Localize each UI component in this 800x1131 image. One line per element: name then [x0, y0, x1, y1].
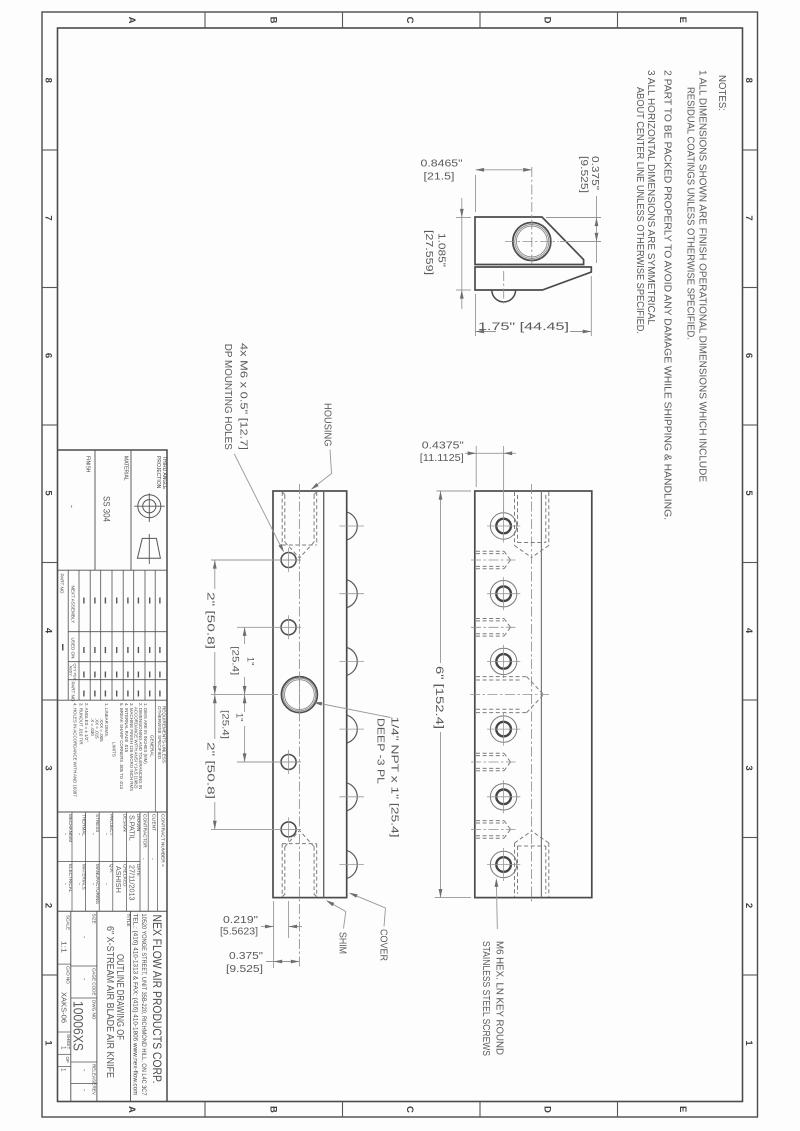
svg-text:ASSY: ASSY	[68, 666, 73, 677]
svg-text:SHIM: SHIM	[337, 932, 349, 954]
svg-text:1": 1"	[235, 713, 245, 722]
svg-text:-: -	[67, 505, 77, 508]
svg-text:6: 6	[743, 353, 754, 358]
svg-text:10520 YONGE STREET, UNIT 35B-2: 10520 YONGE STREET, UNIT 35B-220, RICHMO…	[140, 914, 147, 1096]
svg-text:3. RUNOUT .010 TIR: 3. RUNOUT .010 TIR	[78, 703, 83, 745]
svg-text:-: -	[62, 883, 68, 885]
svg-text:[9.525]: [9.525]	[226, 964, 263, 975]
svg-text:7: 7	[42, 215, 53, 220]
svg-text:SIZE: SIZE	[91, 914, 96, 924]
svg-text:CAGE CODE: CAGE CODE	[91, 968, 96, 996]
svg-text:1": 1"	[246, 657, 256, 666]
svg-text:1/4" NPT x 1" [25.4]: 1/4" NPT x 1" [25.4]	[389, 717, 401, 838]
svg-text:Q.A.: Q.A.	[109, 864, 114, 873]
svg-text:8: 8	[743, 78, 754, 83]
svg-text:E: E	[677, 17, 688, 23]
svg-text:ELECTRICAL: ELECTRICAL	[68, 864, 73, 893]
svg-text:3: 3	[743, 765, 754, 770]
svg-text:STRESS: STRESS	[95, 814, 100, 832]
svg-text:[11.1125]: [11.1125]	[420, 453, 464, 464]
svg-text:2 PART TO BE PACKED PROPERLY: 2 PART TO BE PACKED PROPERLY TO AVOID AN…	[662, 70, 673, 520]
svg-text:0.375": 0.375"	[589, 156, 600, 191]
svg-text:FINISH: FINISH	[85, 456, 91, 473]
svg-text:D: D	[542, 1106, 553, 1113]
svg-text:DEEP -3 PL: DEEP -3 PL	[375, 718, 387, 784]
svg-text:4: 4	[42, 628, 53, 634]
svg-text:0.8465": 0.8465"	[421, 159, 464, 170]
svg-text:-: -	[103, 833, 109, 835]
svg-text:MATERIALS: MATERIALS	[82, 864, 87, 890]
svg-text:ASHISH: ASHISH	[114, 866, 123, 893]
svg-text:[5.5623]: [5.5623]	[220, 927, 258, 938]
svg-text:1: 1	[60, 1046, 67, 1050]
svg-text:-: -	[76, 833, 82, 835]
svg-text:0.375": 0.375"	[229, 951, 264, 962]
svg-text:NEX FLOW AIR PRODUCTS CORP.: NEX FLOW AIR PRODUCTS CORP.	[150, 915, 163, 1084]
svg-text:ABOUT CENTER LINE UNLESS OTHER: ABOUT CENTER LINE UNLESS OTHERWISE SPECI…	[634, 87, 645, 334]
svg-text:6" [152.4]: 6" [152.4]	[433, 666, 445, 729]
svg-text:[27.559]: [27.559]	[423, 230, 434, 275]
svg-text:DWG NO: DWG NO	[91, 1000, 96, 1020]
svg-text:MATERIAL: MATERIAL	[123, 456, 129, 481]
svg-text:D: D	[542, 17, 553, 24]
svg-text:DP MOUNTING HOLES: DP MOUNTING HOLES	[222, 344, 234, 450]
svg-text:27/11/2013: 27/11/2013	[128, 865, 137, 900]
svg-text:MECHANISM: MECHANISM	[68, 814, 73, 842]
svg-text:10006XS: 10006XS	[70, 1001, 85, 1051]
svg-text:NOTES:: NOTES:	[716, 75, 727, 111]
svg-text:0.219": 0.219"	[223, 915, 259, 926]
svg-text:2" [50.8]: 2" [50.8]	[205, 742, 216, 799]
svg-text:2" [50.8]: 2" [50.8]	[205, 592, 216, 649]
svg-text:OTHERWISE SPECIFIED: OTHERWISE SPECIFIED	[157, 706, 162, 760]
svg-text:NEXT ASSEMBLY: NEXT ASSEMBLY	[70, 586, 75, 624]
svg-text:1.75" [44.45]: 1.75" [44.45]	[478, 321, 569, 333]
svg-text:USED ON: USED ON	[70, 638, 75, 659]
svg-text:1: 1	[743, 1040, 754, 1046]
svg-text:PART NO: PART NO	[60, 574, 65, 594]
svg-text:COVER: COVER	[378, 929, 390, 961]
svg-text:1.085": 1.085"	[436, 233, 447, 268]
svg-text:-: -	[76, 883, 82, 885]
svg-text:1 ALL DIMENSIONS SHOWN ARE F: 1 ALL DIMENSIONS SHOWN ARE FINISH OPERAT…	[697, 70, 708, 482]
svg-text:1: 1	[42, 1040, 53, 1046]
svg-text:[21.5]: [21.5]	[424, 172, 455, 183]
svg-text:1:1: 1:1	[60, 941, 69, 953]
svg-text:4: 4	[743, 628, 754, 634]
svg-text:5: 5	[42, 490, 53, 496]
svg-text:OF: OF	[65, 1057, 70, 1064]
svg-text:-: -	[140, 858, 146, 860]
svg-text:LIMITS: LIMITS	[111, 742, 116, 757]
svg-text:STAINLESS STEEL SCREWS: STAINLESS STEEL SCREWS	[480, 941, 492, 1056]
svg-text:6" X-STREAM AIR BLADE AIR KNIF: 6" X-STREAM AIR BLADE AIR KNIFE	[104, 926, 115, 1078]
svg-text:C: C	[404, 1106, 415, 1113]
svg-text:A: A	[126, 1106, 137, 1113]
svg-text:E: E	[677, 1106, 688, 1112]
svg-text:CONTRACT NUMBER =: CONTRACT NUMBER =	[160, 814, 166, 867]
svg-text:5: 5	[743, 490, 754, 496]
svg-text:S.PATIL: S.PATIL	[128, 815, 137, 841]
svg-text:6: 6	[42, 353, 53, 358]
svg-text:[25.4]: [25.4]	[231, 646, 241, 675]
svg-text:TEL.: (416) 410-1313 & FAX: (4: TEL.: (416) 410-1313 & FAX: (416) 410-18…	[132, 914, 139, 1096]
svg-text:2: 2	[743, 903, 754, 908]
svg-text:CAD NO: CAD NO	[65, 966, 70, 984]
svg-text:2: 2	[42, 903, 53, 908]
svg-text:DESIGN: DESIGN	[122, 814, 127, 832]
svg-text:XAKS-06: XAKS-06	[60, 992, 69, 1023]
svg-text:-: -	[62, 833, 68, 835]
svg-text:-: -	[150, 858, 156, 860]
svg-text:RESIDUAL COATINGS UNLESS OTHER: RESIDUAL COATINGS UNLESS OTHERWISE SPECI…	[685, 87, 696, 340]
svg-text:4. HOLES IN ACCORDANCE WITH AN: 4. HOLES IN ACCORDANCE WITH AND 10387	[72, 703, 77, 797]
svg-text:TITLE: TITLE	[125, 914, 131, 927]
svg-text:0.4375": 0.4375"	[422, 441, 465, 452]
svg-text:B: B	[267, 1106, 278, 1113]
svg-text:3 ALL HORIZONTAL DIMENSIONS: 3 ALL HORIZONTAL DIMENSIONS ARE SYMMETRI…	[645, 70, 656, 325]
svg-text:REV: REV	[91, 1086, 96, 1096]
svg-text:5. BREAK SHARP CORNERS .005 TO: 5. BREAK SHARP CORNERS .005 TO .013	[119, 703, 124, 789]
svg-text:7: 7	[743, 215, 754, 220]
svg-text:B: B	[267, 17, 278, 24]
svg-text:2. ANGLES = ± 1/2°: 2. ANGLES = ± 1/2°	[84, 703, 89, 742]
svg-text:A: A	[126, 17, 137, 24]
svg-text:HOUSING: HOUSING	[322, 403, 334, 447]
svg-text:CONTRACTOR: CONTRACTOR	[141, 814, 147, 848]
svg-text:PART NO: PART NO	[70, 682, 75, 702]
svg-text:CLIENT: CLIENT	[151, 814, 157, 831]
svg-text:GENERAL: GENERAL	[149, 735, 154, 757]
svg-text:SCALE: SCALE	[65, 915, 70, 930]
svg-text:-: -	[89, 883, 95, 885]
svg-text:1: 1	[60, 1068, 67, 1072]
svg-text:3: 3	[42, 765, 53, 770]
svg-text:4x M6 x 0.5" [12.7]: 4x M6 x 0.5" [12.7]	[237, 343, 249, 450]
svg-text:PROJECTION: PROJECTION	[155, 456, 161, 489]
svg-text:8: 8	[42, 78, 53, 83]
svg-text:SS 304: SS 304	[101, 496, 112, 522]
svg-text:-: -	[89, 833, 95, 835]
svg-text:-: -	[103, 883, 109, 885]
svg-text:M6 HEX. LN KEY ROUND: M6 HEX. LN KEY ROUND	[494, 941, 506, 1055]
svg-text:C: C	[404, 17, 415, 24]
svg-text:[9.525]: [9.525]	[578, 156, 589, 193]
svg-text:.X = .030: .X = .030	[90, 718, 95, 736]
svg-text:[25.4]: [25.4]	[221, 710, 231, 739]
svg-text:RELEASE: RELEASE	[91, 1064, 96, 1085]
